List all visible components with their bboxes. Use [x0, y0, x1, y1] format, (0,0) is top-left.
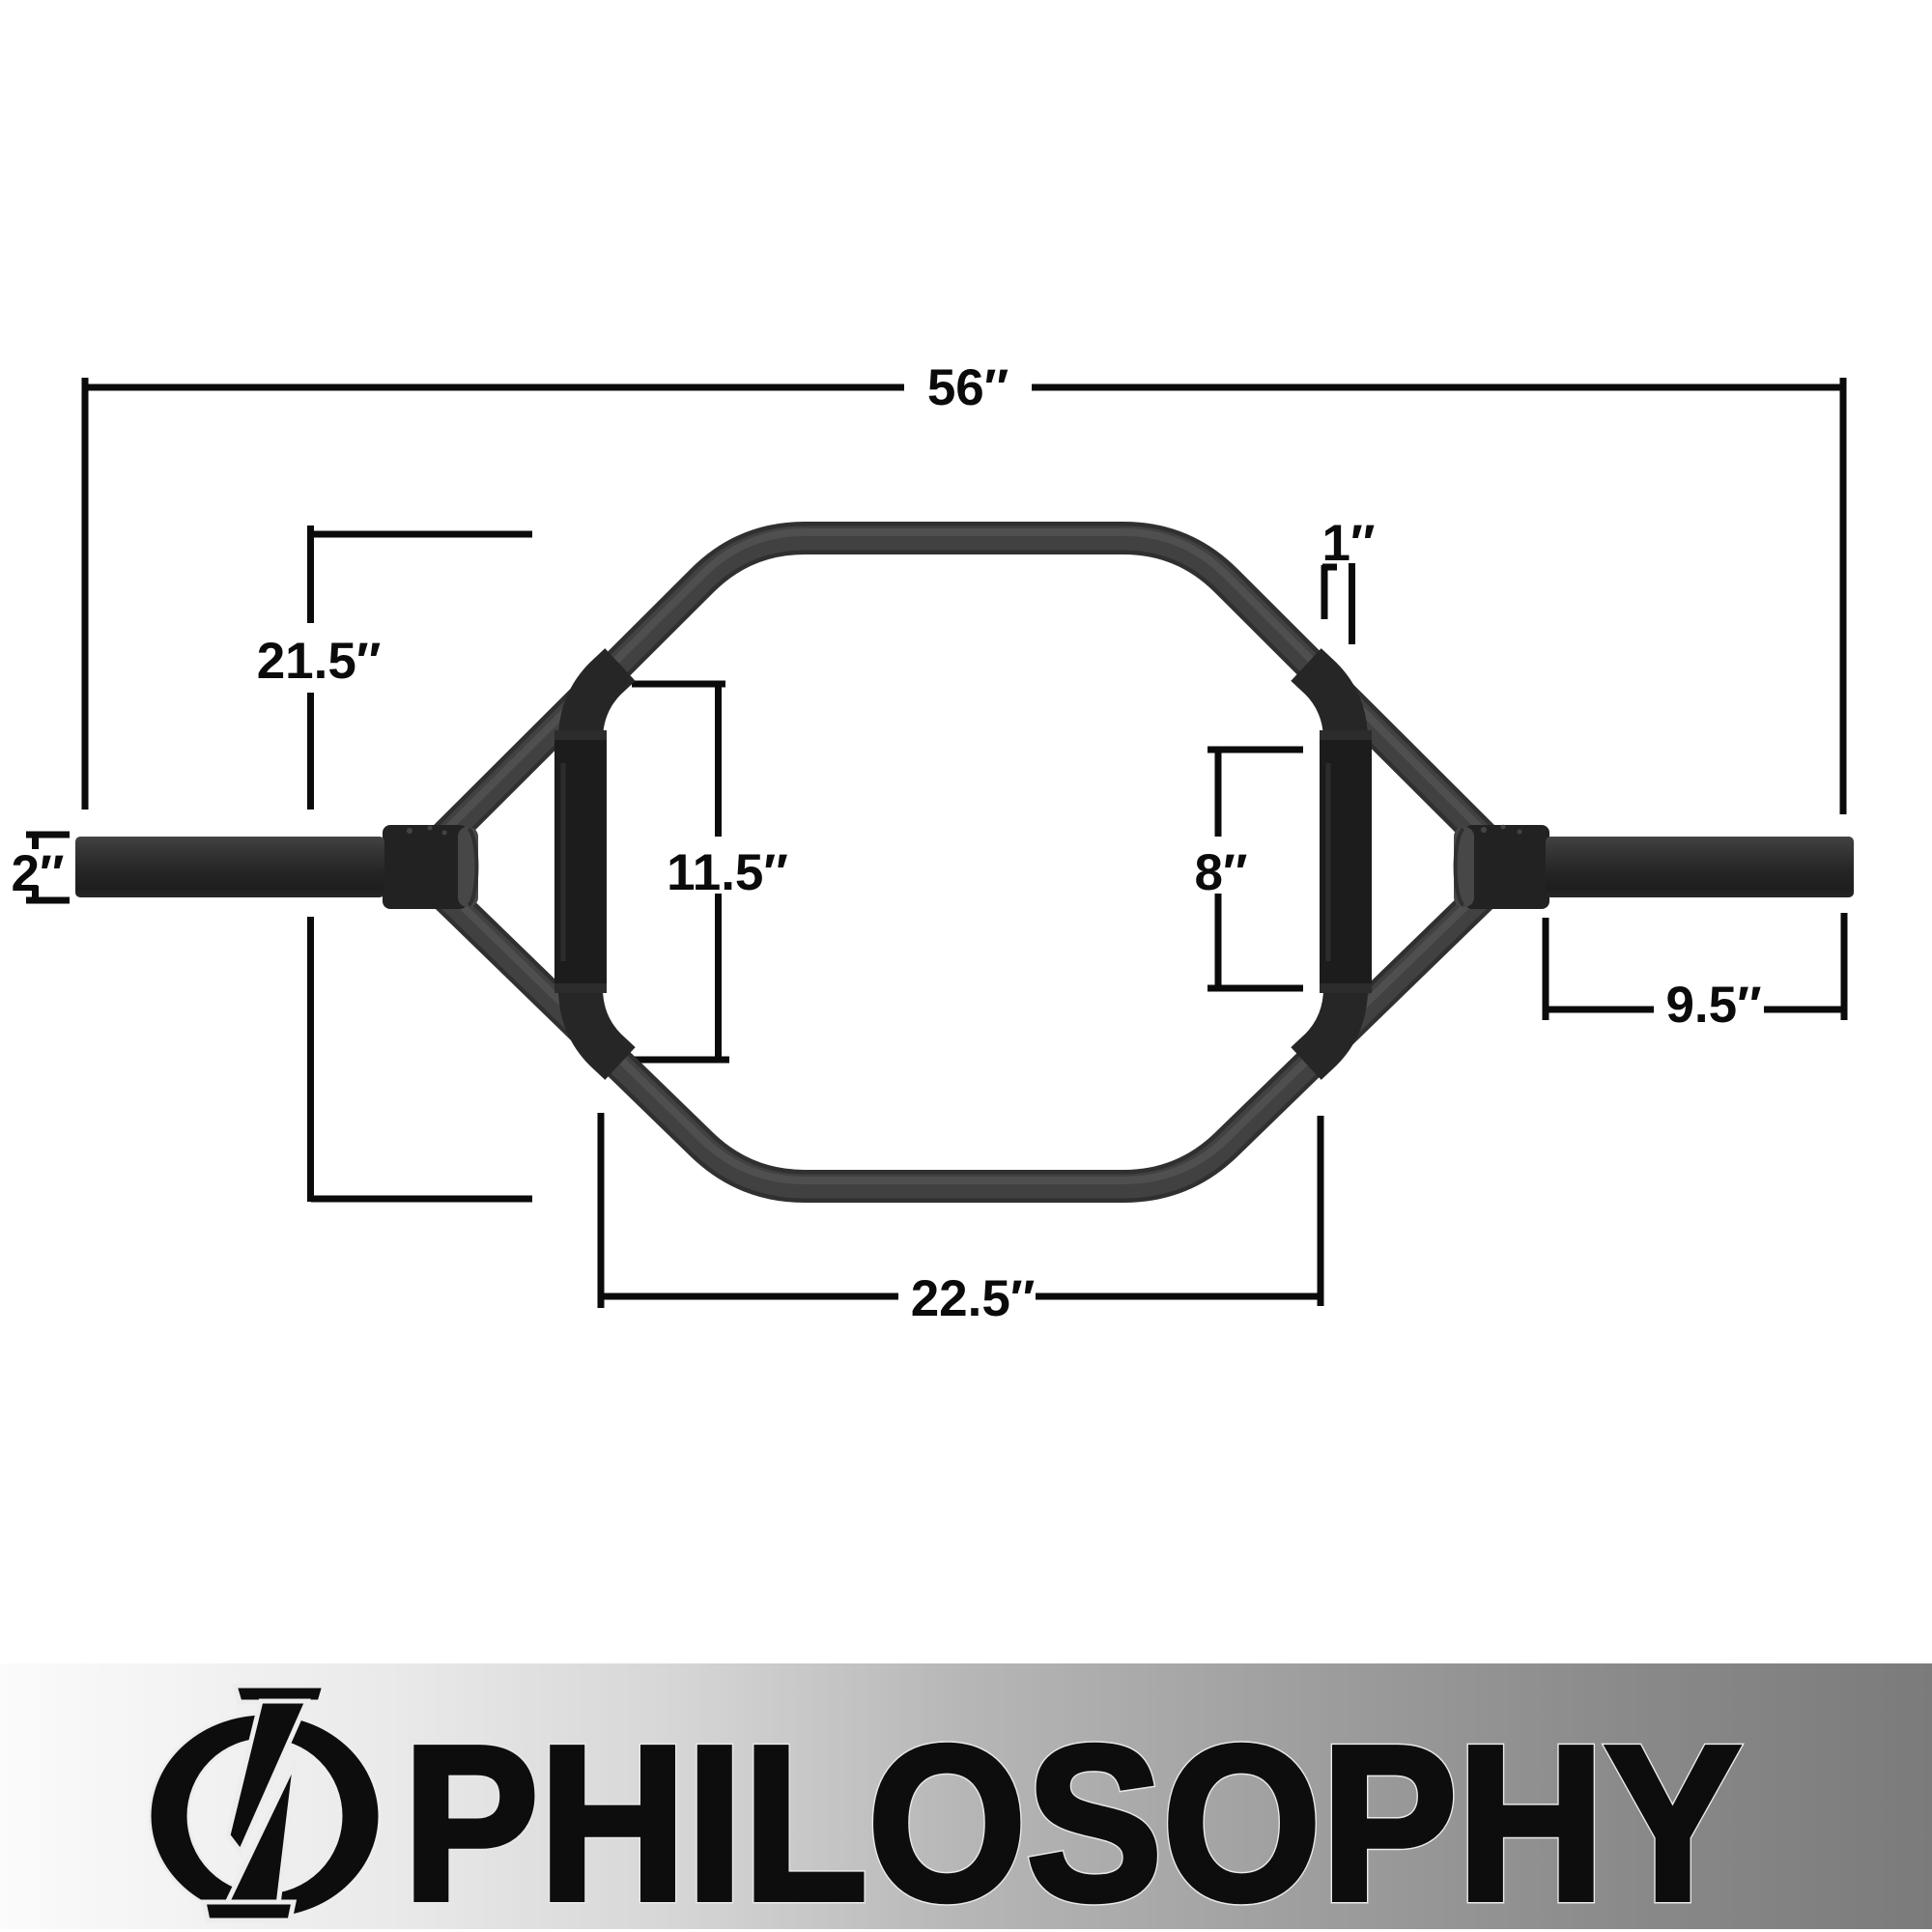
- svg-text:22.5′′: 22.5′′: [911, 1270, 1036, 1327]
- svg-text:11.5′′: 11.5′′: [667, 844, 788, 901]
- svg-text:2′′: 2′′: [12, 845, 65, 902]
- svg-text:1′′: 1′′: [1322, 515, 1376, 572]
- svg-text:PHILOSOPHY: PHILOSOPHY: [403, 1701, 1741, 1932]
- svg-text:9.5′′: 9.5′′: [1665, 977, 1761, 1034]
- svg-text:56′′: 56′′: [927, 359, 1009, 416]
- svg-text:8′′: 8′′: [1195, 844, 1248, 901]
- svg-text:21.5′′: 21.5′′: [257, 633, 382, 690]
